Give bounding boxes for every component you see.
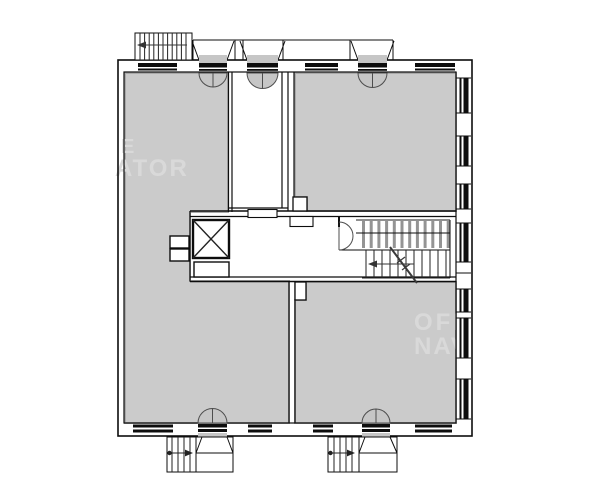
top-wall-windows (138, 63, 455, 71)
window-bar (138, 63, 177, 67)
window-bar (464, 289, 469, 312)
window-bar (460, 318, 462, 358)
top-exterior-stair (135, 33, 192, 60)
floor-plan-canvas: E ATOR OFF NAV (0, 0, 602, 492)
window-bar (415, 63, 455, 67)
window-bar (464, 318, 469, 358)
door-swing-icon (339, 236, 353, 250)
window-bar (460, 136, 462, 166)
stair-upper-flight (362, 221, 450, 248)
door-leaf (358, 63, 387, 68)
window-bar (133, 425, 173, 428)
window-bar (460, 184, 462, 209)
exit-door-bottom-left (198, 409, 227, 438)
window-bar (460, 379, 462, 419)
exit-door-bottom-right (362, 409, 390, 437)
window-bar (305, 69, 338, 71)
door-leaf (198, 424, 227, 428)
floor-plan-drawing: E ATOR OFF NAV (0, 0, 602, 492)
door-leaf (362, 424, 390, 428)
window-bar (464, 223, 469, 262)
shaft-notch-top (293, 197, 307, 211)
window-bar (248, 425, 272, 428)
door-swing-icon (263, 73, 279, 89)
window-bar (460, 289, 462, 312)
window-bar (415, 69, 455, 71)
arrow-head-icon (368, 261, 377, 268)
door-leaf (199, 63, 227, 68)
bottom-wall-windows (133, 425, 452, 433)
door-leaf (247, 63, 278, 68)
window-bar (138, 69, 177, 71)
room-top-right[interactable] (295, 73, 456, 211)
watermark-right: OFF NAV (414, 309, 471, 360)
window-bar (460, 223, 462, 262)
right-wall-windows (456, 78, 471, 419)
corridor-niche (290, 217, 313, 227)
watermark-left-line2: ATOR (115, 155, 189, 182)
window-bar (313, 430, 333, 433)
main-stair (339, 216, 450, 283)
shaft-notch-bottom (295, 282, 306, 300)
window-bar (133, 430, 173, 433)
window-bar (415, 425, 452, 428)
watermark-right-line1: OFF (414, 309, 471, 336)
window-bar (248, 430, 272, 433)
door-swing-icon (339, 222, 353, 236)
bottom-exterior-stair-right (328, 437, 397, 472)
vestibule-opening (248, 210, 277, 218)
window-bar (460, 78, 462, 113)
service-shaft (170, 236, 189, 248)
window-bar (464, 184, 469, 209)
service-shaft (170, 249, 189, 261)
window-bar (313, 425, 333, 428)
window-bar (305, 63, 338, 67)
bottom-exterior-stair-left (167, 437, 233, 472)
elevator-lobby-box (194, 262, 229, 277)
window-bar (464, 78, 469, 113)
door-swing-icon (247, 73, 263, 89)
window-bar (464, 379, 469, 419)
entrance-door-top-center (240, 41, 285, 89)
window-bar (415, 430, 452, 433)
window-bar (464, 136, 469, 166)
